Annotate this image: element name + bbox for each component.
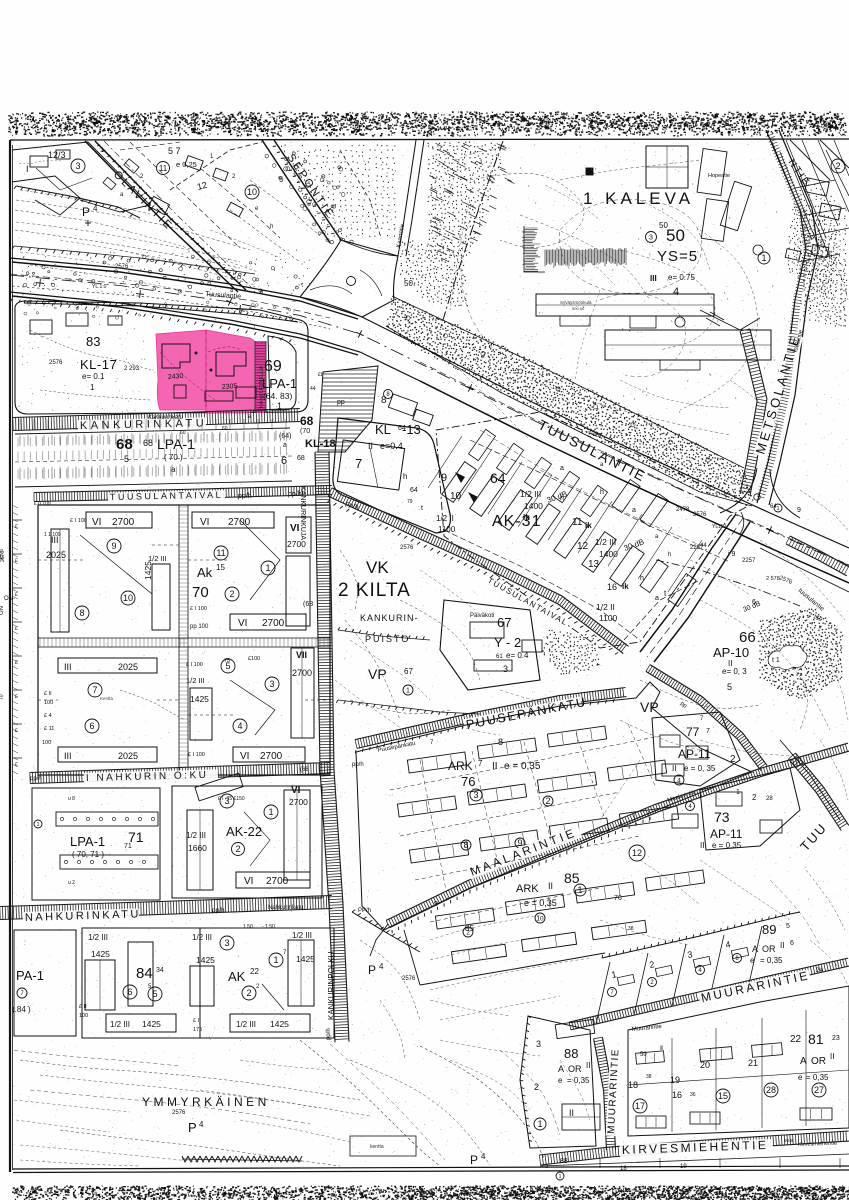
svg-text:3: 3: [649, 235, 653, 242]
svg-text:5 7: 5 7: [168, 146, 181, 156]
svg-text:70: 70: [192, 584, 209, 601]
svg-text:e = 0,35: e = 0,35: [712, 841, 742, 850]
svg-text:1: 1: [36, 822, 39, 828]
svg-text:1/2 III: 1/2 III: [292, 931, 312, 940]
svg-text:(.84 ): (.84 ): [12, 1005, 31, 1014]
svg-text:27: 27: [814, 1085, 824, 1095]
svg-text:(70: (70: [300, 428, 310, 435]
svg-text:u 2: u 2: [68, 880, 75, 886]
svg-text:Kentta: Kentta: [100, 696, 114, 701]
svg-text:VK: VK: [366, 558, 389, 577]
svg-text:£ 4: £ 4: [44, 713, 52, 719]
svg-text:88: 88: [560, 1158, 568, 1165]
svg-text:1: 1: [273, 955, 278, 965]
svg-text:85: 85: [564, 870, 580, 886]
svg-text:pp/h: pp/h: [238, 493, 252, 500]
svg-text:1 KALEVA: 1 KALEVA: [583, 189, 694, 208]
svg-text:1 50: 1 50: [243, 924, 253, 930]
svg-text:81: 81: [808, 1031, 824, 1047]
svg-text:1/2 III: 1/2 III: [186, 831, 206, 840]
svg-text:2700: 2700: [262, 618, 285, 629]
svg-text:50: 50: [404, 279, 413, 288]
svg-text:II: II: [492, 761, 498, 772]
svg-text:36: 36: [690, 1092, 696, 1098]
svg-text:1/2 III: 1/2 III: [186, 676, 205, 685]
svg-text:89: 89: [762, 922, 776, 937]
svg-text:77: 77: [686, 725, 700, 739]
svg-text:4: 4: [199, 1120, 204, 1129]
svg-text:1660: 1660: [188, 843, 207, 853]
svg-text:YL.1:0: YL.1:0: [92, 284, 107, 290]
svg-text:5: 5: [786, 923, 790, 930]
svg-text:2430: 2430: [168, 373, 184, 381]
svg-text:kentta: kentta: [370, 1144, 384, 1150]
svg-text:( 70, 71 ): ( 70, 71 ): [72, 850, 104, 859]
svg-text:VI: VI: [92, 517, 101, 528]
svg-text:2700: 2700: [112, 517, 135, 528]
svg-text:2 KILTA: 2 KILTA: [338, 580, 411, 601]
svg-text:68: 68: [116, 436, 133, 453]
svg-text:VI: VI: [240, 751, 249, 762]
svg-text:AP-11: AP-11: [710, 827, 743, 841]
svg-text:A: A: [800, 1056, 807, 1067]
svg-text:P: P: [82, 205, 90, 219]
svg-text:2025: 2025: [118, 751, 138, 761]
svg-text:88: 88: [564, 1046, 578, 1061]
svg-text:P: P: [188, 1120, 197, 1135]
svg-text:2 578: 2 578: [766, 576, 780, 582]
svg-text:7: 7: [355, 456, 362, 471]
svg-text:VI: VI: [238, 618, 247, 629]
svg-text:a: a: [655, 595, 659, 602]
svg-text:12: 12: [577, 541, 589, 552]
svg-text:2700: 2700: [228, 517, 251, 528]
svg-text:VI: VI: [290, 523, 300, 534]
svg-text:1: 1: [90, 383, 95, 392]
svg-text:£: £: [15, 524, 18, 530]
svg-text:e = 0, 35: e = 0, 35: [684, 764, 716, 773]
svg-text:11: 11: [572, 517, 583, 528]
svg-text:A: A: [752, 944, 758, 954]
svg-text:83: 83: [86, 334, 100, 349]
svg-text:7: 7: [478, 759, 483, 768]
svg-text:III: III: [64, 751, 72, 761]
svg-text:9: 9: [797, 507, 801, 514]
svg-text:28: 28: [766, 796, 773, 802]
svg-text:3: 3: [536, 1039, 541, 1049]
svg-text:6: 6: [127, 987, 132, 997]
svg-text:VI: VI: [244, 876, 253, 887]
svg-text:71: 71: [124, 843, 132, 850]
svg-text:1/2 III: 1/2 III: [110, 1020, 130, 1029]
svg-text:PA-1: PA-1: [16, 968, 44, 983]
svg-text:(68: (68: [303, 601, 313, 608]
svg-text:£ II: £ II: [44, 691, 52, 697]
svg-text:Nahkurinkatu: Nahkurinkatu: [268, 905, 303, 911]
svg-text:70: 70: [0, 694, 5, 700]
svg-text:8: 8: [463, 840, 468, 850]
svg-text:2700: 2700: [287, 539, 306, 549]
svg-text:64: 64: [490, 470, 506, 486]
svg-text:(64. 83): (64. 83): [263, 391, 292, 401]
svg-text:15: 15: [718, 1091, 728, 1101]
svg-text:VP: VP: [368, 666, 387, 682]
svg-text:e = 0,35: e = 0,35: [504, 761, 541, 772]
svg-text:1400: 1400: [599, 549, 618, 559]
svg-text:£ I -75 £150: £ I -75 £150: [218, 796, 245, 802]
svg-text:£t: £t: [318, 372, 323, 378]
svg-text:LPA-1: LPA-1: [262, 376, 297, 391]
svg-text:15: 15: [216, 563, 225, 572]
svg-text:h: h: [668, 552, 671, 558]
svg-text:u 8: u 8: [68, 796, 75, 802]
svg-text:ARK: ARK: [448, 759, 473, 773]
svg-text:38: 38: [646, 1074, 652, 1080]
svg-text:2: 2: [235, 844, 240, 854]
svg-text:8: 8: [498, 737, 503, 747]
svg-text:( 70 ): ( 70 ): [164, 453, 183, 462]
svg-text:2: 2: [752, 793, 757, 802]
svg-text:a: a: [632, 507, 636, 514]
svg-text:e= 0.1: e= 0.1: [82, 372, 105, 381]
svg-text:2576: 2576: [400, 545, 414, 551]
svg-text:60: 60: [222, 426, 228, 432]
svg-text:73: 73: [714, 809, 730, 825]
svg-text:pp/h: pp/h: [30, 776, 42, 782]
svg-text:a: a: [560, 465, 564, 472]
svg-text:18: 18: [628, 1080, 638, 1090]
svg-text:34: 34: [156, 967, 164, 974]
svg-text:AK-22: AK-22: [226, 824, 262, 839]
svg-text:2: 2: [545, 796, 550, 806]
svg-text:6: 6: [752, 599, 756, 606]
svg-text:1/2 III: 1/2 III: [236, 1020, 256, 1029]
svg-text:22: 22: [790, 1034, 802, 1045]
svg-text:38: 38: [628, 926, 634, 932]
svg-text:OR: OR: [568, 1064, 582, 1074]
svg-text:2: 2: [246, 988, 251, 998]
svg-text:3: 3: [503, 664, 508, 674]
svg-text:24: 24: [816, 968, 823, 974]
svg-text:19: 19: [680, 1164, 687, 1170]
svg-text:2: 2: [466, 929, 470, 936]
svg-text:4: 4: [677, 777, 681, 784]
svg-text:h: h: [403, 472, 407, 481]
svg-text:4: 4: [673, 286, 679, 298]
svg-text:4: 4: [237, 721, 242, 731]
svg-text:21: 21: [748, 1058, 758, 1068]
svg-text:5: 5: [727, 682, 732, 692]
svg-text:AK: AK: [228, 969, 246, 984]
svg-text:175: 175: [193, 1027, 202, 1033]
svg-text:OR: OR: [811, 1056, 826, 1067]
svg-text:23: 23: [832, 1035, 840, 1042]
svg-text:II: II: [586, 1061, 590, 1070]
svg-text:28: 28: [766, 1085, 776, 1095]
svg-text:1425: 1425: [190, 694, 209, 704]
svg-text:76: 76: [614, 895, 622, 902]
svg-text:3: 3: [224, 938, 229, 948]
svg-text:= 0,35: = 0,35: [760, 956, 783, 965]
svg-text:44: 44: [700, 543, 707, 549]
svg-text:2700: 2700: [260, 751, 283, 762]
svg-text:a: a: [171, 465, 176, 474]
svg-text:10: 10: [123, 593, 133, 603]
svg-text:9: 9: [441, 472, 447, 484]
svg-text:VI: VI: [200, 517, 209, 528]
svg-text:1 1 109: 1 1 109: [44, 532, 61, 538]
svg-text:(68: (68: [300, 767, 309, 773]
svg-text:£: £: [15, 762, 18, 768]
svg-text:2025: 2025: [46, 550, 66, 560]
svg-text:1/2 III: 1/2 III: [192, 933, 212, 942]
svg-text:(64): (64): [279, 433, 291, 440]
svg-text:1/2 III: 1/2 III: [88, 933, 108, 942]
svg-text:1425: 1425: [142, 1019, 161, 1029]
svg-text:12/3: 12/3: [48, 150, 66, 160]
svg-text:P: P: [368, 963, 376, 977]
svg-text:66: 66: [739, 629, 756, 646]
svg-text:£ I: £ I: [193, 1018, 200, 1024]
svg-text:2305: 2305: [222, 383, 238, 391]
svg-text:Y - 2: Y - 2: [494, 635, 521, 650]
svg-text:pp/h: pp/h: [288, 491, 302, 498]
svg-text:II: II: [672, 764, 676, 773]
svg-text:= 0,35: = 0,35: [806, 1073, 829, 1082]
svg-text:II: II: [780, 941, 784, 950]
svg-text:I: I: [26, 164, 29, 174]
svg-text:1: 1: [736, 789, 740, 796]
svg-text:£100: £100: [248, 656, 260, 662]
svg-text:ON: ON: [0, 606, 5, 615]
svg-text:II: II: [368, 441, 373, 451]
svg-text:5: 5: [225, 661, 230, 671]
svg-text:1/2 II: 1/2 II: [436, 514, 454, 523]
svg-text:50.8: 50.8: [784, 1138, 793, 1143]
svg-text:Ak: Ak: [197, 565, 213, 580]
svg-text:3: 3: [75, 161, 80, 171]
svg-text:2 293: 2 293: [124, 366, 140, 372]
svg-text:1100: 1100: [438, 525, 456, 534]
svg-text:2: 2: [229, 589, 234, 599]
svg-text:Kankurinkatu: Kankurinkatu: [148, 415, 184, 421]
svg-text:1: 1: [559, 1174, 562, 1180]
svg-text:1425: 1425: [296, 954, 315, 964]
svg-text:1: 1: [265, 563, 270, 573]
svg-text:10: 10: [450, 491, 462, 502]
svg-text:KANKURINPOLKU: KANKURINPOLKU: [327, 951, 336, 1020]
svg-text:i 9: i 9: [728, 551, 736, 558]
svg-text:1: 1: [761, 253, 766, 263]
svg-text:7: 7: [706, 728, 710, 735]
svg-text:9: 9: [111, 541, 116, 551]
svg-text:pp 100: pp 100: [190, 624, 209, 630]
svg-text:18: 18: [620, 1166, 627, 1172]
svg-text:1/2 III: 1/2 III: [595, 537, 616, 547]
svg-text:P: P: [470, 1153, 478, 1167]
svg-text:1425: 1425: [91, 949, 110, 959]
svg-text:11: 11: [216, 548, 225, 558]
svg-text:1425: 1425: [143, 561, 153, 580]
svg-text:2576: 2576: [49, 360, 63, 366]
svg-text:1: 1: [577, 885, 582, 895]
svg-text:68: 68: [143, 438, 153, 448]
svg-text:67: 67: [404, 667, 413, 676]
svg-text:2025: 2025: [118, 662, 138, 672]
svg-text:£ I 100: £ I 100: [186, 662, 203, 668]
svg-text:e=0.4: e=0.4: [380, 441, 403, 451]
svg-text:100: 100: [79, 1013, 88, 1019]
svg-text:1425: 1425: [196, 955, 215, 965]
svg-text:II: II: [700, 841, 704, 850]
svg-text:Päiväkoti: Päiväkoti: [470, 613, 494, 619]
svg-text:1: 1: [406, 688, 410, 695]
svg-text:ik: ik: [585, 521, 592, 530]
svg-text:II: II: [569, 1108, 574, 1118]
svg-text:4: 4: [93, 204, 98, 213]
svg-text:64: 64: [410, 487, 418, 494]
svg-text:2576: 2576: [0, 549, 5, 560]
svg-text:III: III: [64, 662, 72, 672]
svg-text:VP: VP: [640, 699, 659, 715]
svg-text:ik: ik: [622, 582, 629, 591]
svg-text:KL-18: KL-18: [305, 438, 336, 450]
svg-text:£ I 100: £ I 100: [190, 606, 207, 612]
svg-text:1400: 1400: [524, 501, 543, 511]
svg-text:pp/h: pp/h: [352, 762, 364, 768]
svg-text:pp: pp: [337, 399, 345, 406]
svg-text:4: 4: [481, 1152, 486, 1161]
svg-text:2576: 2576: [172, 1110, 186, 1116]
svg-text:12: 12: [632, 848, 642, 858]
svg-text:79: 79: [407, 499, 413, 505]
svg-text:h: h: [270, 224, 273, 230]
svg-text:1/2 II: 1/2 II: [596, 602, 615, 612]
svg-text:e: e: [750, 956, 755, 965]
svg-text:h: h: [560, 495, 564, 502]
svg-text:2700: 2700: [266, 876, 289, 887]
svg-text:16: 16: [672, 1090, 682, 1100]
svg-text:- 1 50: - 1 50: [262, 924, 275, 930]
svg-text:1: 1: [537, 1119, 542, 1129]
svg-text:e= 0, 3: e= 0, 3: [722, 667, 747, 676]
svg-text:68: 68: [300, 414, 314, 428]
svg-text:44: 44: [310, 386, 316, 392]
svg-text:16: 16: [607, 582, 617, 592]
svg-text:3: 3: [269, 679, 274, 689]
svg-text:KL-17: KL-17: [80, 357, 117, 372]
svg-text:1: 1: [268, 807, 273, 817]
svg-text:e= 0.75: e= 0.75: [668, 273, 695, 282]
svg-text:1/2 III: 1/2 III: [520, 489, 541, 499]
svg-text:t 1: t 1: [772, 657, 780, 664]
svg-text:1: 1: [776, 506, 779, 512]
svg-text:2: 2: [534, 1082, 539, 1092]
svg-text:5: 5: [124, 454, 129, 464]
svg-text:A: A: [558, 1064, 564, 1074]
svg-text:2700: 2700: [289, 797, 308, 807]
svg-text:10: 10: [536, 915, 544, 922]
svg-text:e: e: [558, 1076, 563, 1085]
svg-text:VI: VI: [291, 785, 301, 796]
svg-text:60: 60: [180, 430, 186, 436]
svg-text:pp/h: pp/h: [212, 907, 225, 914]
svg-text:4: 4: [379, 962, 384, 971]
svg-text:VII: VII: [296, 650, 307, 660]
svg-text:OR: OR: [762, 944, 776, 954]
svg-text:£ I 100: £ I 100: [188, 752, 205, 758]
svg-text:13: 13: [588, 559, 600, 570]
svg-text:£ II 109: £ II 109: [34, 501, 51, 507]
svg-text:22: 22: [250, 967, 259, 976]
svg-text:8: 8: [79, 608, 84, 618]
svg-text:h: h: [600, 489, 604, 496]
svg-text:19: 19: [670, 1075, 680, 1085]
svg-text:AP-10: AP-10: [713, 645, 749, 660]
svg-text:II: II: [548, 881, 553, 891]
svg-text:7: 7: [92, 685, 97, 695]
svg-text:6: 6: [790, 940, 794, 947]
svg-text:61: 61: [496, 654, 503, 660]
svg-text:2257: 2257: [742, 558, 756, 564]
svg-text:LPA-1: LPA-1: [70, 834, 105, 849]
svg-text:= 0,35: = 0,35: [567, 1076, 590, 1085]
svg-text:AK-31: AK-31: [492, 513, 541, 530]
svg-text:10: 10: [247, 187, 257, 197]
svg-text:£ I 100: £ I 100: [70, 518, 87, 524]
svg-text:69: 69: [264, 358, 282, 375]
svg-text:e: e: [798, 1073, 803, 1082]
svg-text:84: 84: [136, 965, 153, 982]
svg-text:1100: 1100: [599, 613, 618, 623]
svg-text:KL: KL: [375, 422, 391, 437]
svg-text:100: 100: [44, 700, 53, 706]
svg-text:£: £: [15, 592, 18, 598]
svg-text:PP/h: PP/h: [358, 908, 371, 914]
svg-text:76: 76: [461, 774, 475, 789]
svg-text:5: 5: [152, 989, 157, 999]
svg-text:6: 6: [89, 721, 94, 731]
svg-text:£ 11: £ 11: [44, 726, 54, 732]
svg-text:KANKURIN-: KANKURIN-: [360, 613, 419, 623]
svg-text:3: 3: [473, 790, 478, 800]
svg-text:Hopeatie: Hopeatie: [708, 173, 730, 179]
svg-text:II: II: [830, 1052, 834, 1061]
svg-text:YS=5: YS=5: [657, 248, 698, 265]
svg-text:1: 1: [100, 147, 104, 154]
svg-text:50: 50: [666, 226, 685, 245]
svg-text:e = 0,35: e = 0,35: [524, 898, 557, 908]
svg-text:1425: 1425: [270, 1019, 289, 1029]
svg-text:LPA-1: LPA-1: [157, 436, 195, 452]
svg-text:17: 17: [635, 1101, 645, 1111]
svg-text:ARK: ARK: [516, 883, 539, 895]
svg-text:£ II: £ II: [79, 1004, 87, 1010]
svg-text:t: t: [421, 505, 423, 512]
svg-text:2576: 2576: [693, 512, 707, 518]
